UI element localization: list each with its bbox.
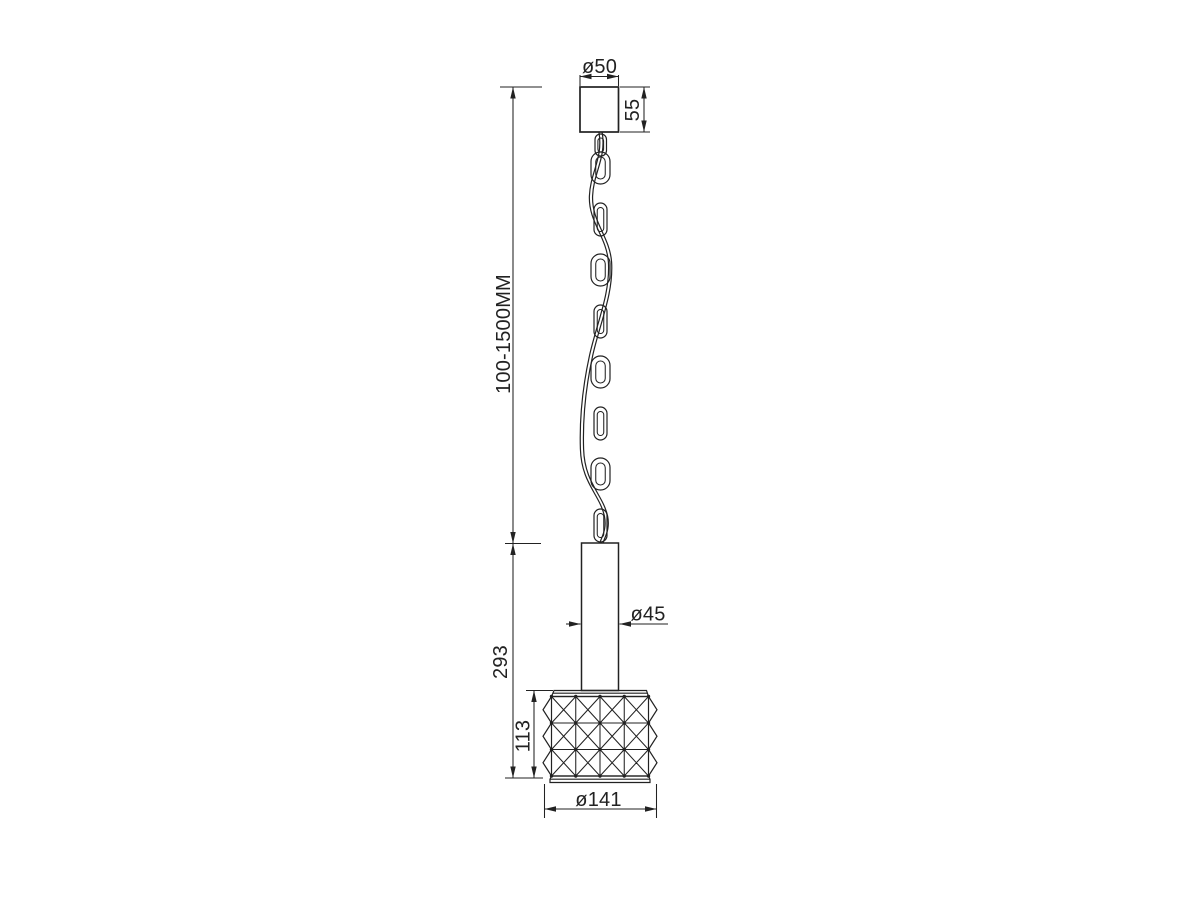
stem-tube — [582, 543, 619, 691]
crystal-shade — [543, 691, 657, 783]
pendant-lamp-drawing: ø50 55 100-1500MM 293 113 ø45 ø141 — [0, 0, 1200, 900]
canopy-body — [580, 87, 619, 132]
dim-suspension-length-label: 100-1500MM — [493, 274, 515, 394]
shade-zigzag-left — [543, 697, 552, 777]
dim-body-height-label: 293 — [490, 645, 512, 679]
shade-lattice — [543, 695, 657, 778]
drawing-canvas: ø50 55 100-1500MM 293 113 ø45 ø141 — [0, 0, 1200, 900]
dim-canopy-diameter-label: ø50 — [582, 56, 617, 78]
dimension-suspension-length: 100-1500MM — [493, 87, 542, 544]
shade-zigzag-right — [649, 697, 658, 777]
dim-stem-diameter-label: ø45 — [630, 604, 665, 626]
dim-shade-height-label: 113 — [513, 720, 535, 753]
dimension-shade-diameter: ø141 — [545, 784, 657, 818]
cable-line-right — [583, 132, 611, 545]
dimension-canopy-diameter: ø50 — [580, 56, 619, 86]
stem-body — [582, 543, 619, 691]
dimension-canopy-height: 55 — [620, 87, 650, 132]
dim-shade-diameter-label: ø141 — [575, 789, 621, 811]
dim-canopy-height-label: 55 — [622, 99, 644, 122]
ceiling-canopy — [580, 87, 619, 132]
